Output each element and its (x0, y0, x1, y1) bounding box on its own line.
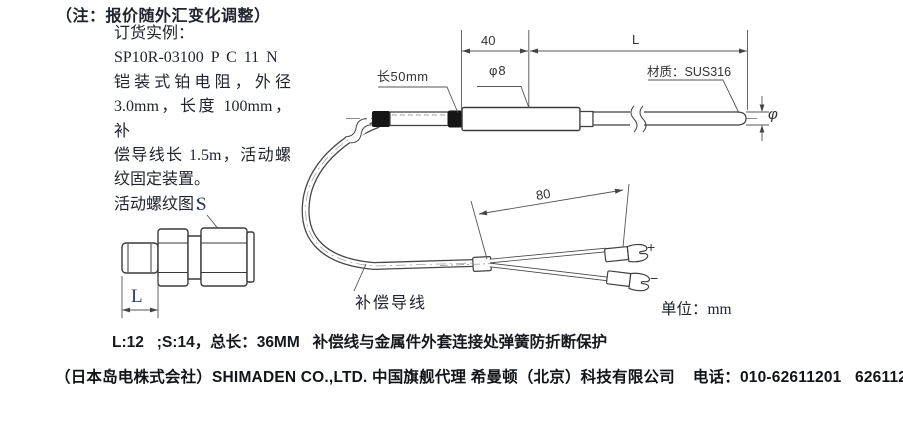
probe-body-phi8 (462, 108, 580, 131)
body-diameter-label: φ8 (489, 63, 507, 78)
fitting-hex-body (158, 229, 188, 286)
units-label: 单位：mm (661, 297, 732, 319)
plus-terminal-label: + (647, 239, 655, 255)
note-line: 偿导线长 1.5m，活动螺 (114, 144, 291, 168)
material-label: 材质：SUS316 (647, 61, 731, 80)
dimension-40-label: 40 (481, 33, 495, 48)
note-line: 3.0mm，长度 100mm，补 (114, 95, 291, 144)
order-example-block: 订货实例： SP10R-03100 P C 11 N 铠装式铂电阻，外径 3.0… (114, 22, 291, 217)
fitting-end-cap (247, 232, 254, 282)
minus-terminal-label: − (650, 270, 658, 286)
heat-shrink-band-right (448, 111, 462, 128)
fitting-L-label: L (131, 286, 143, 308)
fitting-nut (201, 228, 247, 286)
fitting-spacer (188, 236, 201, 279)
spec-document-page: （注：报价随外汇变化调整） 订货实例： SP10R-03100 P C 11 N… (0, 0, 903, 422)
braided-sleeve-50mm (390, 112, 448, 126)
compensation-cable-loop (306, 124, 474, 266)
note-line: SP10R-03100 P C 11 N (114, 46, 291, 70)
note-line: 铠装式铂电阻，外径 (114, 71, 291, 95)
heat-shrink-band-left (372, 111, 390, 127)
compensation-wire-label: 补偿导线 (355, 289, 427, 313)
lead-wires (440, 243, 650, 291)
compression-fitting-drawing (122, 228, 254, 286)
dimension-80-label: 80 (535, 186, 552, 203)
note-line: 纹固定装置。 (114, 168, 291, 192)
fitting-S-label: S (196, 194, 207, 216)
fork-terminal-minus (606, 270, 650, 292)
company-contact-line: （日本岛电株式会社）SHIMADEN CO.,LTD. 中国旗舰代理 希曼顿（北… (55, 365, 903, 387)
sleeve-length-label: 长50mm (377, 66, 429, 85)
spec-summary-line: L:12 ;S:14，总长：36MM 补偿线与金属件外套连接处弹簧防折断保护 (112, 330, 607, 352)
tip-diameter-label: φ (768, 106, 778, 123)
reducer-step (580, 112, 593, 127)
probe-sheath (593, 112, 746, 125)
probe-assembly (346, 106, 757, 132)
note-line: 订货实例： (114, 22, 291, 46)
fitting-thread-end (122, 243, 158, 273)
tip-diameter-arrows (760, 105, 765, 133)
dimension-L-label: L (632, 32, 639, 47)
fork-terminal-plus (604, 243, 648, 264)
